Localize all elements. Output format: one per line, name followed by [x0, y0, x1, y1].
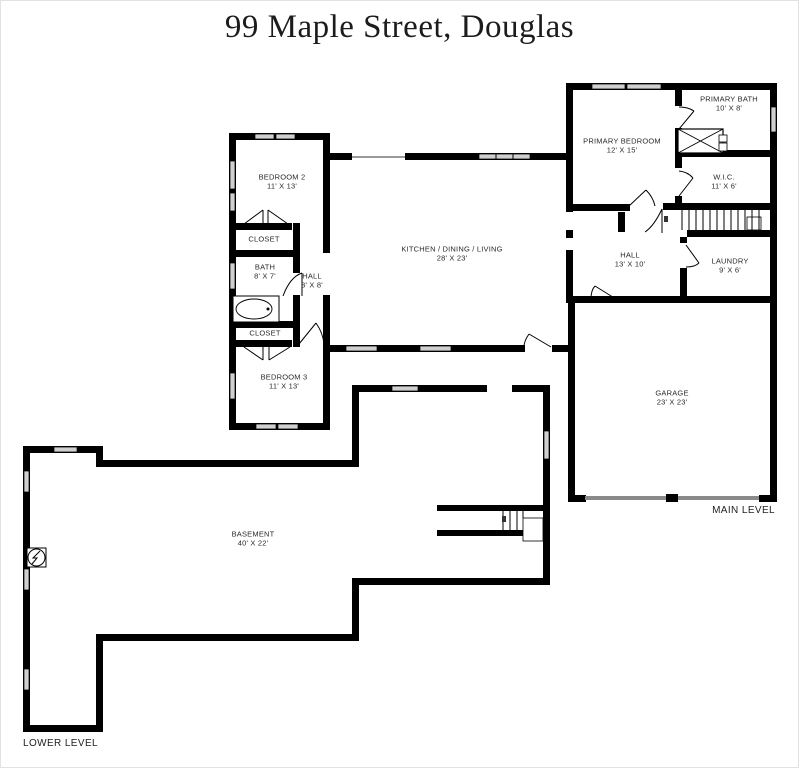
stair-landing — [523, 518, 543, 541]
cased-opening — [352, 156, 405, 158]
stair-direction-marker — [664, 216, 668, 222]
bathtub-icon — [233, 296, 279, 322]
room-label-laundry: LAUNDRY 9' X 6' — [711, 257, 748, 276]
tub-drain — [267, 308, 270, 311]
room-dims: 12' X 15' — [583, 146, 661, 155]
room-name: BEDROOM 3 — [261, 373, 308, 382]
room-name: GARAGE — [655, 389, 688, 398]
stair-direction-marker — [502, 516, 506, 522]
room-name: BASEMENT — [232, 530, 275, 539]
room-dims: 10' X 8' — [700, 104, 758, 113]
room-dims: 13' X 10' — [615, 260, 646, 269]
room-dims: 40' X 22' — [232, 539, 275, 548]
room-dims: 23' X 23' — [655, 398, 688, 407]
room-dims: 3' X 8' — [301, 281, 323, 290]
floor-plan-drawing — [0, 0, 799, 768]
room-dims: 11' X 6' — [711, 182, 737, 191]
stairs-basement — [502, 511, 543, 541]
room-name: CLOSET — [249, 328, 280, 337]
windows — [24, 84, 776, 690]
room-label-basement: BASEMENT 40' X 22' — [232, 530, 275, 549]
main-level-label: MAIN LEVEL — [712, 505, 775, 516]
room-dims: 9' X 6' — [711, 266, 748, 275]
electrical-panel-icon — [27, 548, 46, 567]
room-label-primary-bedroom: PRIMARY BEDROOM 12' X 15' — [583, 137, 661, 156]
room-label-wic: W.I.C. 11' X 6' — [711, 173, 737, 192]
room-name: PRIMARY BATH — [700, 95, 758, 104]
room-label-kitchen-dining-living: KITCHEN / DINING / LIVING 28' X 23' — [401, 245, 502, 264]
room-name: KITCHEN / DINING / LIVING — [401, 245, 502, 254]
room-name: HALL — [615, 251, 646, 260]
room-name: PRIMARY BEDROOM — [583, 137, 661, 146]
room-dims: 28' X 23' — [401, 254, 502, 263]
toilet-tank — [719, 135, 727, 142]
room-label-bedroom3: BEDROOM 3 11' X 13' — [261, 373, 308, 392]
floor-plan-page: 99 Maple Street, Douglas — [0, 0, 799, 768]
lower-level-label: LOWER LEVEL — [23, 738, 98, 749]
stair-treads — [682, 210, 759, 230]
room-dims: 11' X 13' — [261, 382, 308, 391]
room-name: LAUNDRY — [711, 257, 748, 266]
shower-icon — [678, 129, 723, 153]
room-name: BEDROOM 2 — [259, 173, 306, 182]
room-label-primary-bath: PRIMARY BATH 10' X 8' — [700, 95, 758, 114]
room-name: W.I.C. — [711, 173, 737, 182]
toilet-icon — [719, 135, 727, 151]
room-label-bedroom2: BEDROOM 2 11' X 13' — [259, 173, 306, 192]
room-label-hall-small: HALL 3' X 8' — [301, 272, 323, 291]
room-label-garage: GARAGE 23' X 23' — [655, 389, 688, 408]
room-name: BATH — [254, 263, 276, 272]
room-dims: 11' X 13' — [259, 182, 306, 191]
room-label-closet-lower: CLOSET — [249, 328, 280, 337]
toilet-bowl — [719, 143, 727, 151]
room-name: CLOSET — [248, 234, 279, 243]
room-dims: 8' X 7' — [254, 272, 276, 281]
stairs-main — [664, 210, 761, 230]
room-name: HALL — [301, 272, 323, 281]
room-label-closet-upper: CLOSET — [248, 234, 279, 243]
room-label-bath: BATH 8' X 7' — [254, 263, 276, 282]
room-label-hall: HALL 13' X 10' — [615, 251, 646, 270]
wall-segments — [23, 83, 777, 732]
